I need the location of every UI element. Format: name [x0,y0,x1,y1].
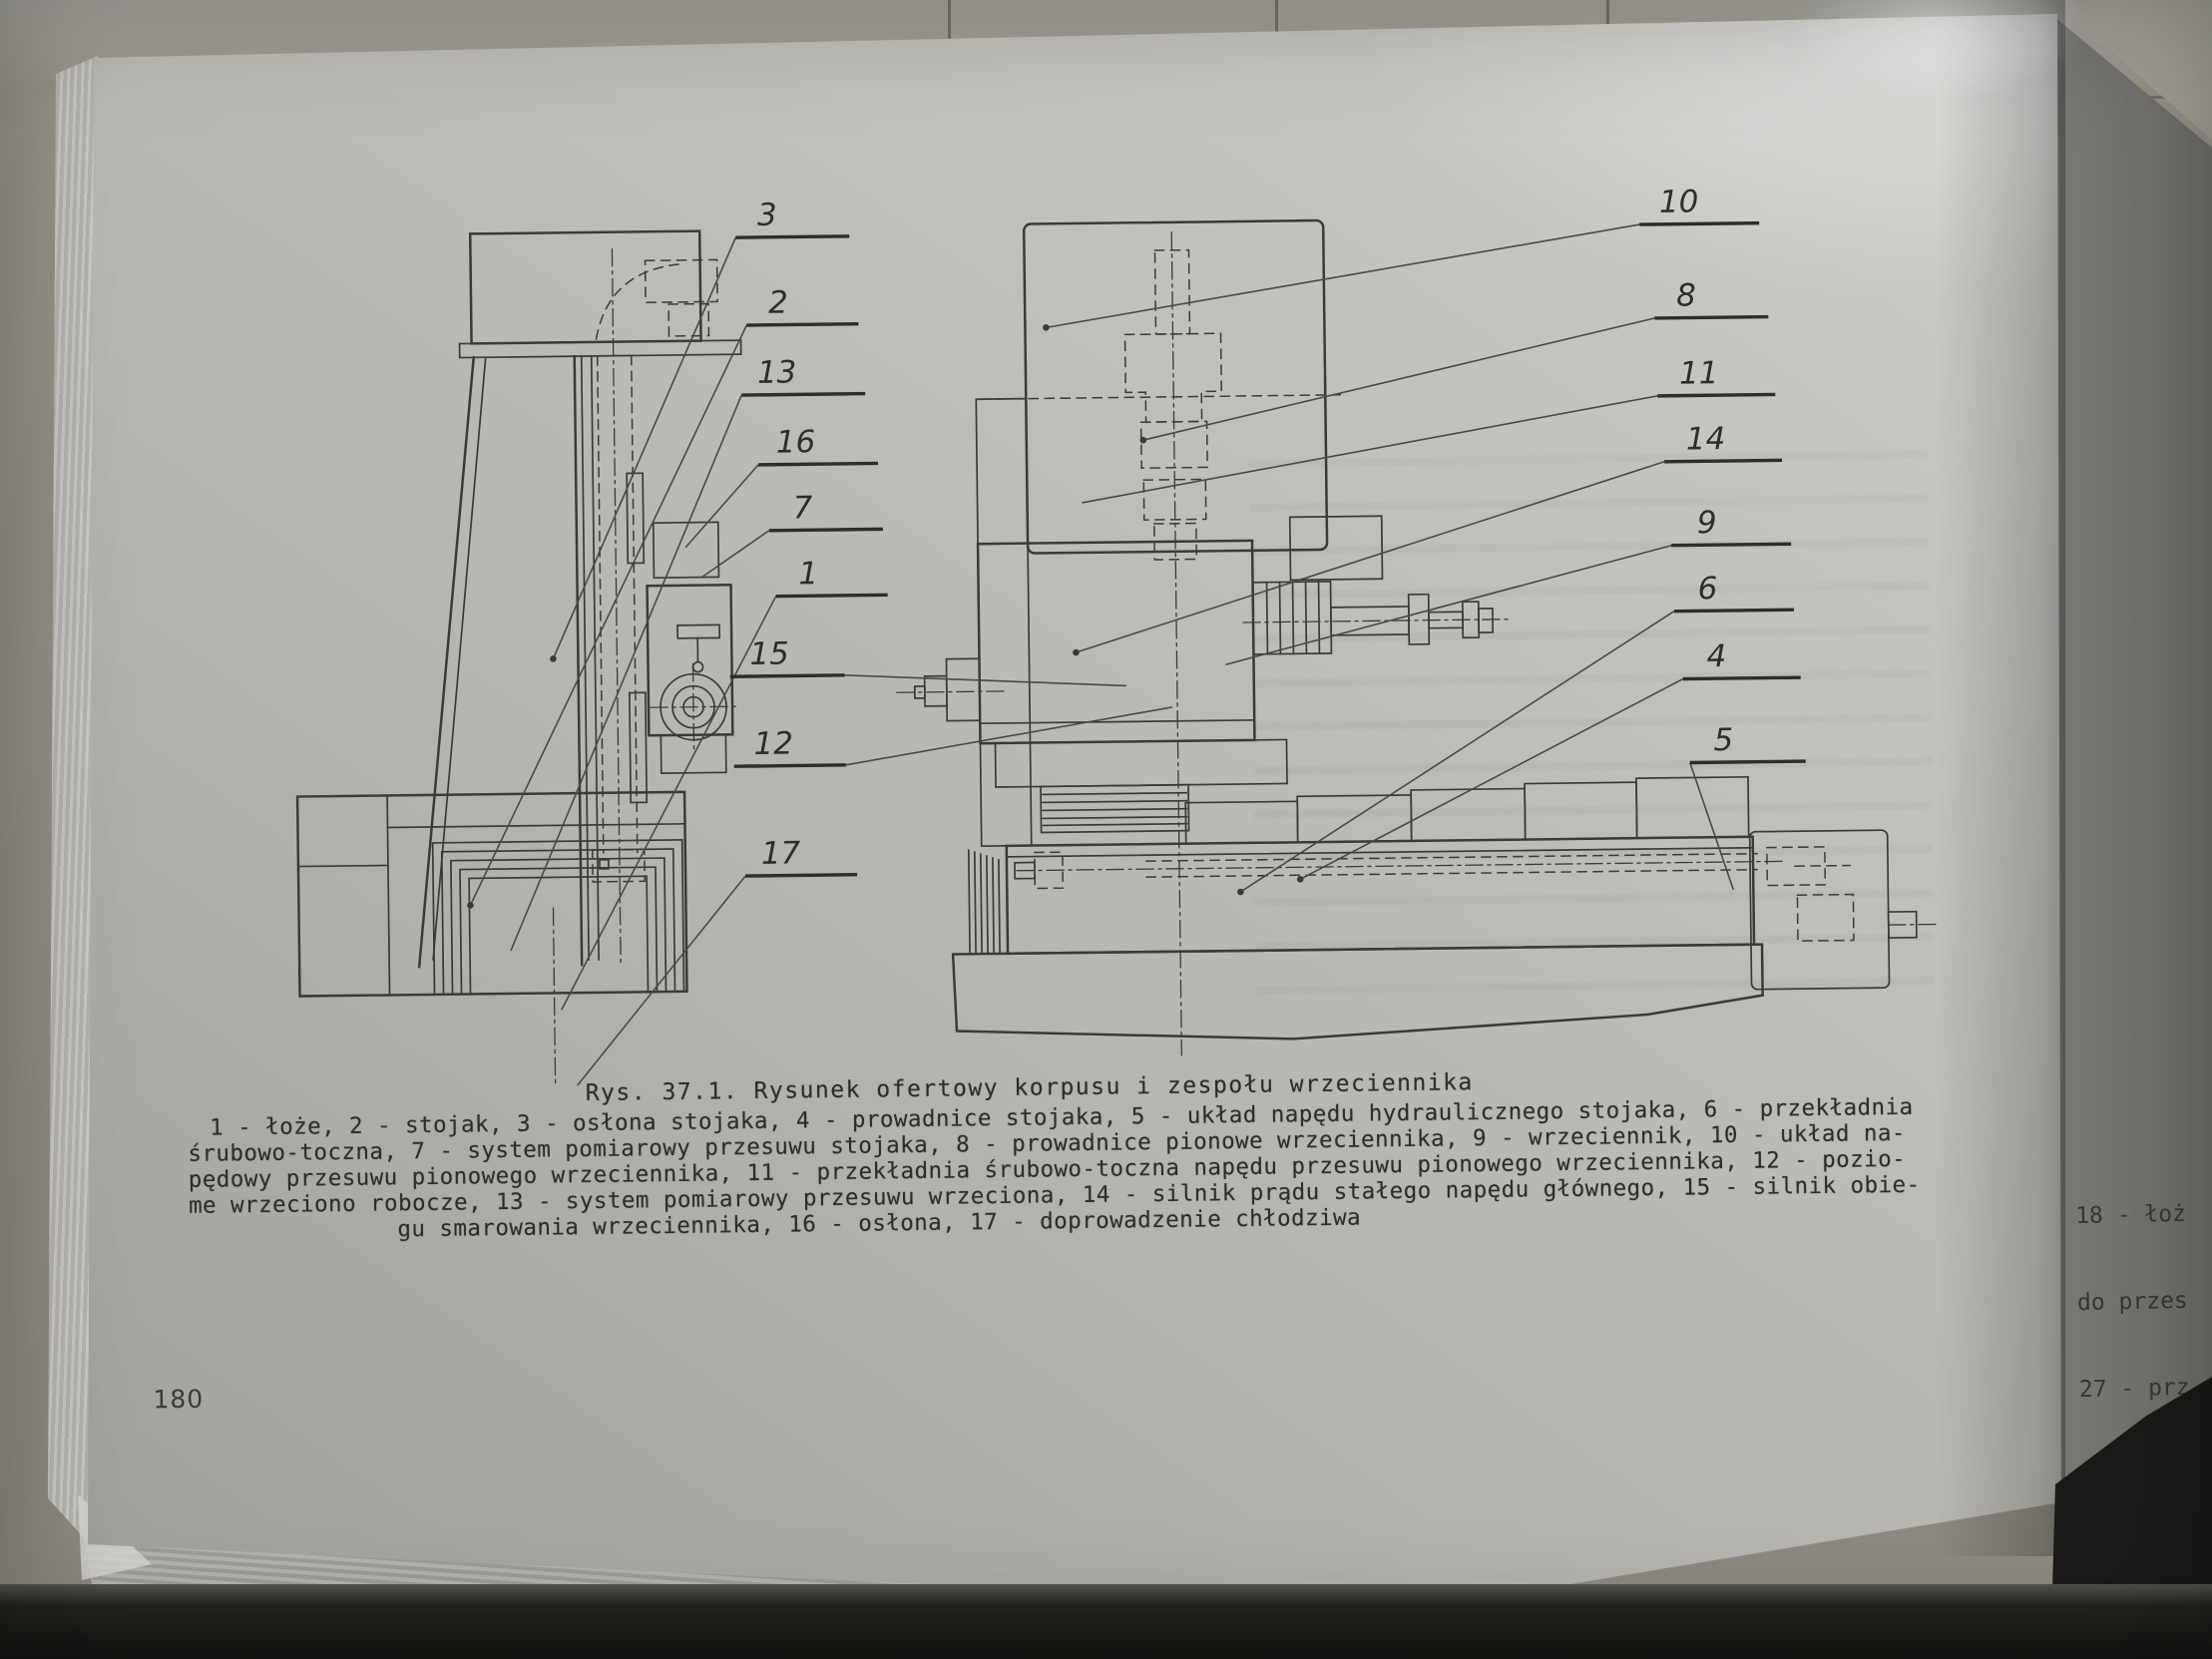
shadow-below-book [0,1584,2212,1659]
part-label-5: 5 [1713,722,1733,758]
front-view-drawing [891,213,1939,1059]
part-label-3: 3 [757,198,777,233]
page-content: 3 2 13 16 7 1 15 12 17 10 8 [0,0,2212,1659]
side-view-drawing [290,230,749,1085]
part-label-1: 1 [798,556,818,592]
part-label-16: 16 [776,424,816,460]
part-label-6: 6 [1697,571,1717,607]
part-label-2: 2 [768,285,788,321]
part-label-10: 10 [1659,184,1699,219]
page-number: 180 [153,1385,204,1415]
part-label-9: 9 [1697,505,1717,541]
next-page-legend-line: do przes [2077,1287,2188,1318]
part-label-13: 13 [757,354,797,390]
part-label-7: 7 [792,490,812,526]
part-label-4: 4 [1706,638,1726,674]
photo-highlight [1756,0,2085,140]
part-labels: 3 2 13 16 7 1 15 12 17 10 8 [724,183,1807,876]
part-label-15: 15 [749,636,789,672]
part-label-8: 8 [1676,277,1696,313]
leader-lines [459,223,1736,1086]
page-gutter-shadow [1936,0,2065,1556]
part-label-12: 12 [753,725,793,761]
technical-diagram: 3 2 13 16 7 1 15 12 17 10 8 [140,83,1948,1102]
book-photo: 3 2 13 16 7 1 15 12 17 10 8 [0,0,2212,1659]
next-page-legend-line: 18 - łoż [2075,1200,2186,1231]
part-label-11: 11 [1679,355,1719,391]
part-label-17: 17 [761,835,801,871]
part-label-14: 14 [1686,421,1726,457]
